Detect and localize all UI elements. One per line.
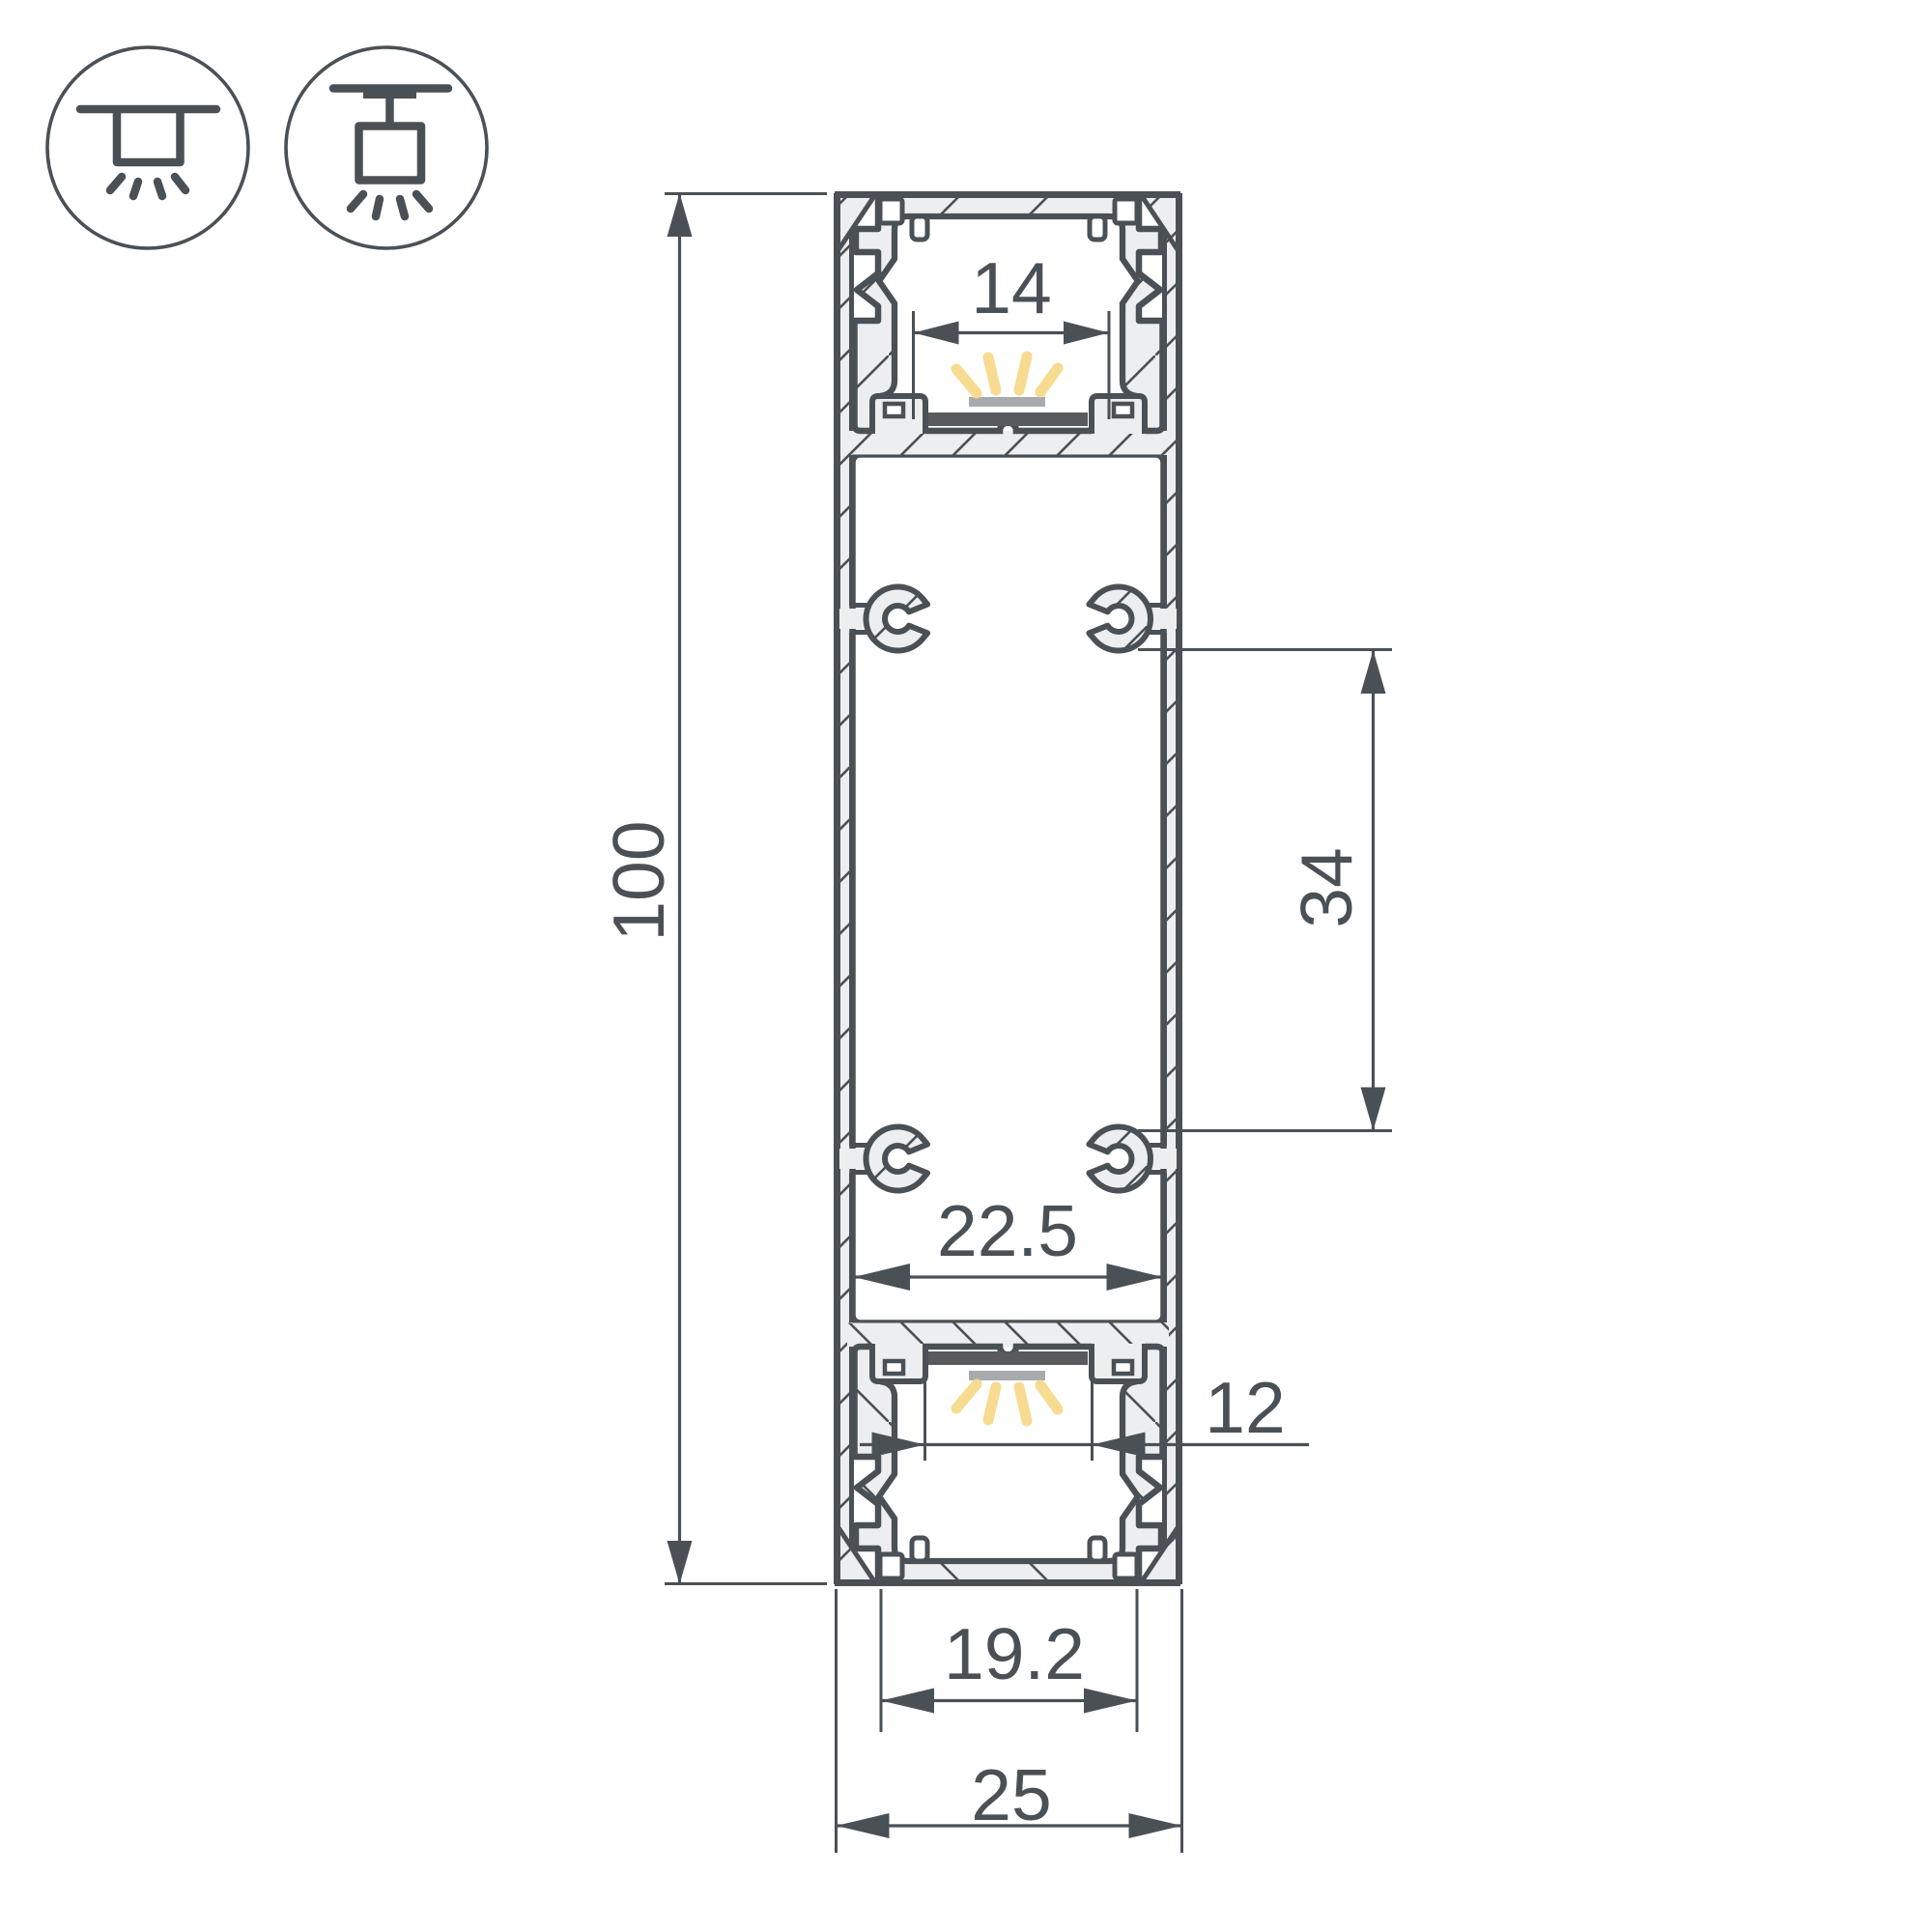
svg-text:22.5: 22.5 [937, 1190, 1078, 1271]
svg-text:12: 12 [1205, 1367, 1285, 1448]
svg-text:14: 14 [971, 247, 1051, 328]
svg-text:19.2: 19.2 [944, 1613, 1085, 1694]
svg-text:34: 34 [1286, 847, 1367, 927]
svg-text:100: 100 [598, 820, 679, 941]
svg-text:25: 25 [971, 1754, 1051, 1835]
